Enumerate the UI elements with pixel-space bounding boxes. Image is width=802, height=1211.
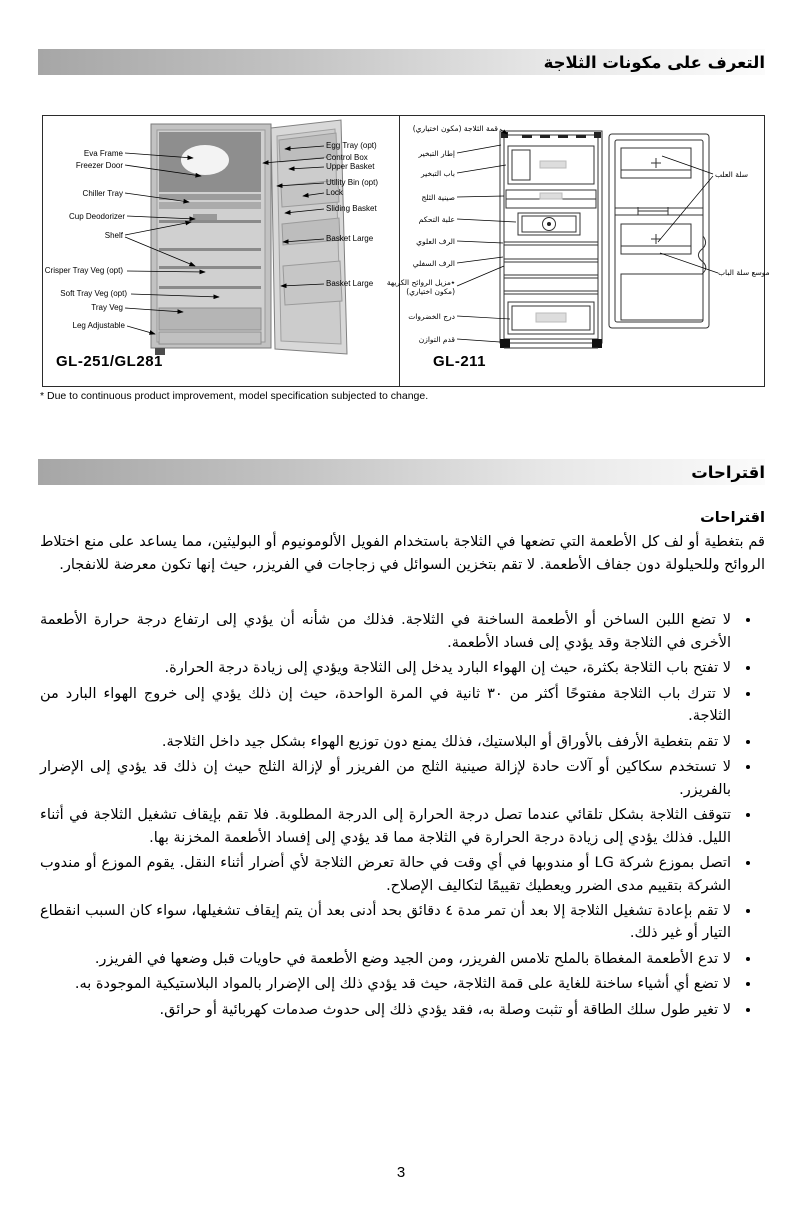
- label-upper-shelf: الرف العلوي: [416, 237, 455, 247]
- leader-lines-gl211: [457, 129, 718, 342]
- fridge-door-gl211: [609, 134, 709, 328]
- list-item: لا تدع الأطعمة المغطاة بالملح تلامس الفر…: [40, 948, 735, 970]
- label-freezer-door: Freezer Door: [76, 161, 123, 171]
- manual-page: التعرف على مكونات الثلاجة: [0, 0, 802, 1211]
- suggestions-list: لا تضع اللبن الساخن أو الأطعمة الساخنة ف…: [40, 609, 765, 1021]
- label-fridge-top: قمة الثلاجة (مكون اختياري): [413, 124, 498, 134]
- model-label-gl251: GL-251/GL281: [56, 353, 163, 370]
- label-shelf: Shelf: [105, 231, 123, 241]
- list-item: لا تضع أي أشياء ساخنة للغاية على قمة الث…: [40, 973, 735, 995]
- label-eva-frame: Eva Frame: [84, 149, 123, 159]
- label-leg-adjustable: Leg Adjustable: [73, 321, 126, 331]
- list-item: لا تستخدم سكاكين أو آلات حادة لإزالة صين…: [40, 756, 735, 801]
- label-upper-basket: Upper Basket: [326, 162, 374, 172]
- list-item: تتوقف الثلاجة بشكل تلقائي عندما تصل درجة…: [40, 804, 735, 849]
- diagram-panel-gl211: قمة الثلاجة (مكون اختياري) إطار التبخير …: [400, 116, 764, 386]
- section-bar-suggestions: اقتراحات: [38, 459, 765, 485]
- label-cup-deodorizer: Cup Deodorizer: [69, 212, 125, 222]
- list-item: لا تضع اللبن الساخن أو الأطعمة الساخنة ف…: [40, 609, 735, 654]
- label-evaporator-door: باب التبخير: [421, 169, 455, 179]
- diagram-panel-gl251: Eva Frame Freezer Door Chiller Tray Cup …: [43, 116, 400, 386]
- label-deodorizer-line2: (مكون اختياري): [406, 287, 455, 297]
- label-basket-large-1: Basket Large: [326, 234, 373, 244]
- fridge-body-gl211: [500, 131, 602, 348]
- fridge-body-gl251: [151, 124, 271, 355]
- label-egg-tray: Egg Tray (opt): [326, 141, 377, 151]
- label-evaporator-frame: إطار التبخير: [419, 149, 455, 159]
- list-item: لا تقم بتغطية الأرفف بالأوراق أو البلاست…: [40, 731, 735, 753]
- label-control-box-ar: علبة التحكم: [419, 215, 455, 225]
- label-soft-tray-veg: Soft Tray Veg (opt): [60, 289, 127, 299]
- label-lower-shelf: الرف السفلي: [413, 259, 455, 269]
- section-title-suggestions: اقتراحات: [687, 463, 765, 482]
- suggestions-intro: قم بتغطية أو لف كل الأطعمة التي تضعها في…: [40, 531, 765, 577]
- label-leveling-foot: قدم التوازن: [419, 335, 455, 345]
- label-tray-veg: Tray Veg: [91, 303, 123, 313]
- section-title-components: التعرف على مكونات الثلاجة: [540, 53, 765, 72]
- list-item: اتصل بموزع شركة LG أو مندوبها في أي وقت …: [40, 852, 735, 897]
- footnote: * Due to continuous product improvement,…: [40, 390, 428, 402]
- label-can-basket: سلة العلب: [715, 170, 748, 180]
- label-lock: Lock: [326, 188, 343, 198]
- label-crisper-tray-veg: Crisper Tray Veg (opt): [45, 266, 123, 276]
- suggestions-content: اقتراحات قم بتغطية أو لف كل الأطعمة التي…: [40, 510, 765, 1024]
- label-utility-bin: Utility Bin (opt): [326, 178, 378, 188]
- list-item: لا تترك باب الثلاجة مفتوحًا أكثر من ٣٠ ث…: [40, 683, 735, 728]
- components-diagram-box: Eva Frame Freezer Door Chiller Tray Cup …: [42, 115, 765, 387]
- label-vegetable-drawer: درج الخضروات: [408, 312, 455, 322]
- list-item: لا تغير طول سلك الطاقة أو تثبت وصلة به، …: [40, 999, 735, 1021]
- list-item: لا تقم بإعادة تشغيل الثلاجة إلا بعد أن ت…: [40, 900, 735, 945]
- section-bar-components: التعرف على مكونات الثلاجة: [38, 49, 765, 75]
- label-chiller-tray: Chiller Tray: [83, 189, 123, 199]
- label-sliding-basket: Sliding Basket: [326, 204, 377, 214]
- label-basket-large-2: Basket Large: [326, 279, 373, 289]
- label-ice-tray: صينية الثلج: [421, 193, 455, 203]
- label-door-basket-expander: موسع سلة الباب: [718, 268, 770, 278]
- model-label-gl211: GL-211: [433, 353, 486, 370]
- suggestions-heading: اقتراحات: [40, 510, 765, 526]
- page-number: 3: [0, 1164, 802, 1181]
- list-item: لا تفتح باب الثلاجة بكثرة، حيث إن الهواء…: [40, 657, 735, 679]
